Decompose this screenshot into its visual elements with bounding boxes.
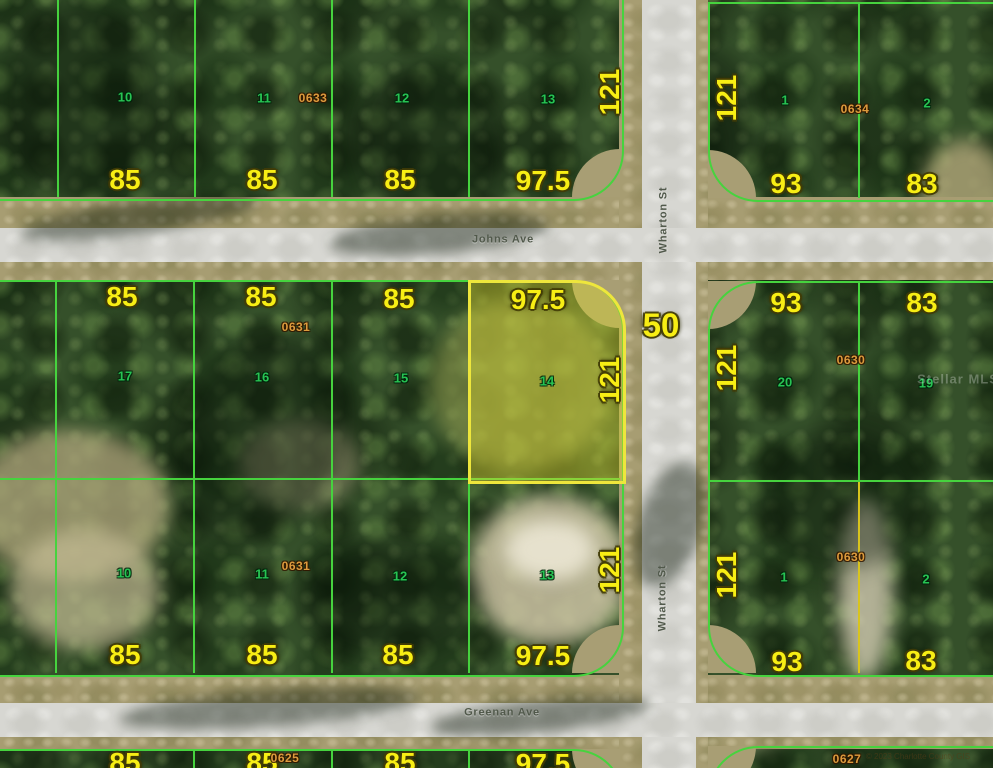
lot-width-label: 97.5 <box>516 642 571 670</box>
aerial-parcel-map: 85 85 85 97.5 121 93 83 121 85 85 85 97.… <box>0 0 993 768</box>
lot-width-label: 85 <box>383 285 414 313</box>
lot-width-label: 93 <box>770 170 801 198</box>
lot-line <box>331 749 333 768</box>
street-label-wharton-st: Wharton St <box>658 565 669 632</box>
block-number-label: 0634 <box>841 103 870 115</box>
lot-width-label: 97.5 <box>516 750 571 768</box>
lot-number-label: 14 <box>540 375 554 388</box>
lot-line <box>468 749 470 768</box>
lot-line <box>858 2 860 198</box>
block-number-label: 0627 <box>833 753 862 765</box>
lot-number-label: 2 <box>923 97 930 110</box>
lot-depth-label: 121 <box>596 69 624 116</box>
lot-line <box>468 0 470 197</box>
lot-depth-label: 121 <box>596 357 624 404</box>
lot-number-label: 10 <box>117 567 131 580</box>
mls-watermark: Stellar MLS <box>917 373 993 386</box>
lot-width-label: 97.5 <box>511 286 566 314</box>
block-number-label: 0625 <box>271 752 300 764</box>
street-label-greenan-ave: Greenan Ave <box>464 708 540 719</box>
lot-number-label: 11 <box>257 92 271 105</box>
lot-number-label: 15 <box>394 372 408 385</box>
lot-width-label: 85 <box>384 166 415 194</box>
lot-number-label: 11 <box>255 568 269 581</box>
lot-number-label: 12 <box>393 570 407 583</box>
lot-width-label: 85 <box>382 641 413 669</box>
lot-number-label: 13 <box>541 93 555 106</box>
block-outline-0630 <box>708 281 993 677</box>
lot-number-label: 13 <box>540 569 554 582</box>
lot-width-label: 85 <box>384 749 415 768</box>
lot-width-label: 85 <box>246 641 277 669</box>
lot-width-label: 85 <box>109 749 140 768</box>
lot-width-label: 83 <box>905 647 936 675</box>
lot-width-label: 85 <box>109 641 140 669</box>
lot-width-label: 93 <box>771 648 802 676</box>
street-label-wharton-st: Wharton St <box>659 187 670 254</box>
lot-width-label: 85 <box>245 283 276 311</box>
lot-number-label: 1 <box>781 94 788 107</box>
lot-line <box>468 478 470 673</box>
lot-depth-label: 121 <box>713 75 741 122</box>
block-number-label: 0631 <box>282 560 311 572</box>
lot-depth-label: 121 <box>713 345 741 392</box>
lot-depth-label: 121 <box>596 547 624 594</box>
lot-number-label: 10 <box>118 91 132 104</box>
lot-width-label: 83 <box>906 289 937 317</box>
lot-line <box>331 280 333 673</box>
lot-width-label: 85 <box>109 166 140 194</box>
lot-number-label: 16 <box>255 371 269 384</box>
lot-line <box>708 480 993 482</box>
lot-line <box>57 0 59 197</box>
lot-width-label: 85 <box>246 166 277 194</box>
lot-width-label: 97.5 <box>516 167 571 195</box>
lot-line <box>55 280 57 673</box>
lot-line <box>858 281 860 480</box>
road-width-label: 50 <box>643 309 680 342</box>
lot-number-label: 1 <box>780 571 787 584</box>
lot-width-label: 83 <box>906 170 937 198</box>
road-wharton-st <box>642 0 696 768</box>
block-number-label: 0631 <box>282 321 311 333</box>
lot-width-label: 85 <box>106 283 137 311</box>
copyright-watermark: © 2023 Charlotte County GIS <box>866 753 970 761</box>
street-label-johns-ave: Johns Ave <box>472 235 534 246</box>
lot-line <box>193 749 195 768</box>
lot-line <box>194 0 196 197</box>
block-number-label: 0630 <box>837 551 866 563</box>
lot-number-label: 17 <box>118 370 132 383</box>
lot-number-label: 2 <box>922 573 929 586</box>
lot-number-label: 12 <box>395 92 409 105</box>
lot-width-label: 93 <box>770 289 801 317</box>
lot-depth-label: 121 <box>713 552 741 599</box>
lot-line <box>858 480 860 673</box>
block-number-label: 0633 <box>299 92 328 104</box>
lot-line <box>331 0 333 197</box>
lot-line <box>193 280 195 673</box>
lot-number-label: 20 <box>778 376 792 389</box>
block-number-label: 0630 <box>837 354 866 366</box>
